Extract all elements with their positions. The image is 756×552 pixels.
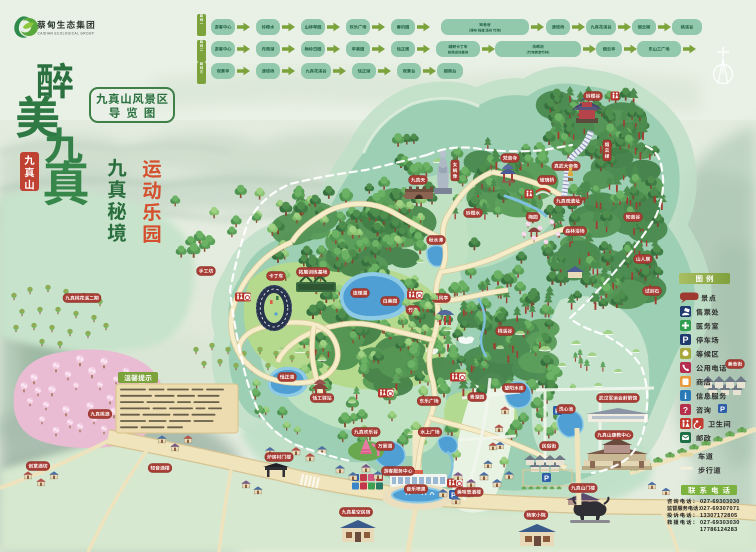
svg-text:?: ? [683,405,688,415]
svg-text:P: P [720,405,725,414]
svg-text:027-69303030: 027-69303030 [700,520,740,526]
svg-text:P: P [682,335,688,345]
svg-text:17786124283: 17786124283 [700,527,738,533]
svg-text:P: P [544,474,549,483]
svg-text:027-69307071: 027-69307071 [700,506,740,512]
svg-text:027-69303030: 027-69303030 [700,499,740,505]
svg-text:13307172805: 13307172805 [700,513,738,519]
svg-text:CAIDIAN ECOLOGICAL GROUP: CAIDIAN ECOLOGICAL GROUP [38,32,95,36]
